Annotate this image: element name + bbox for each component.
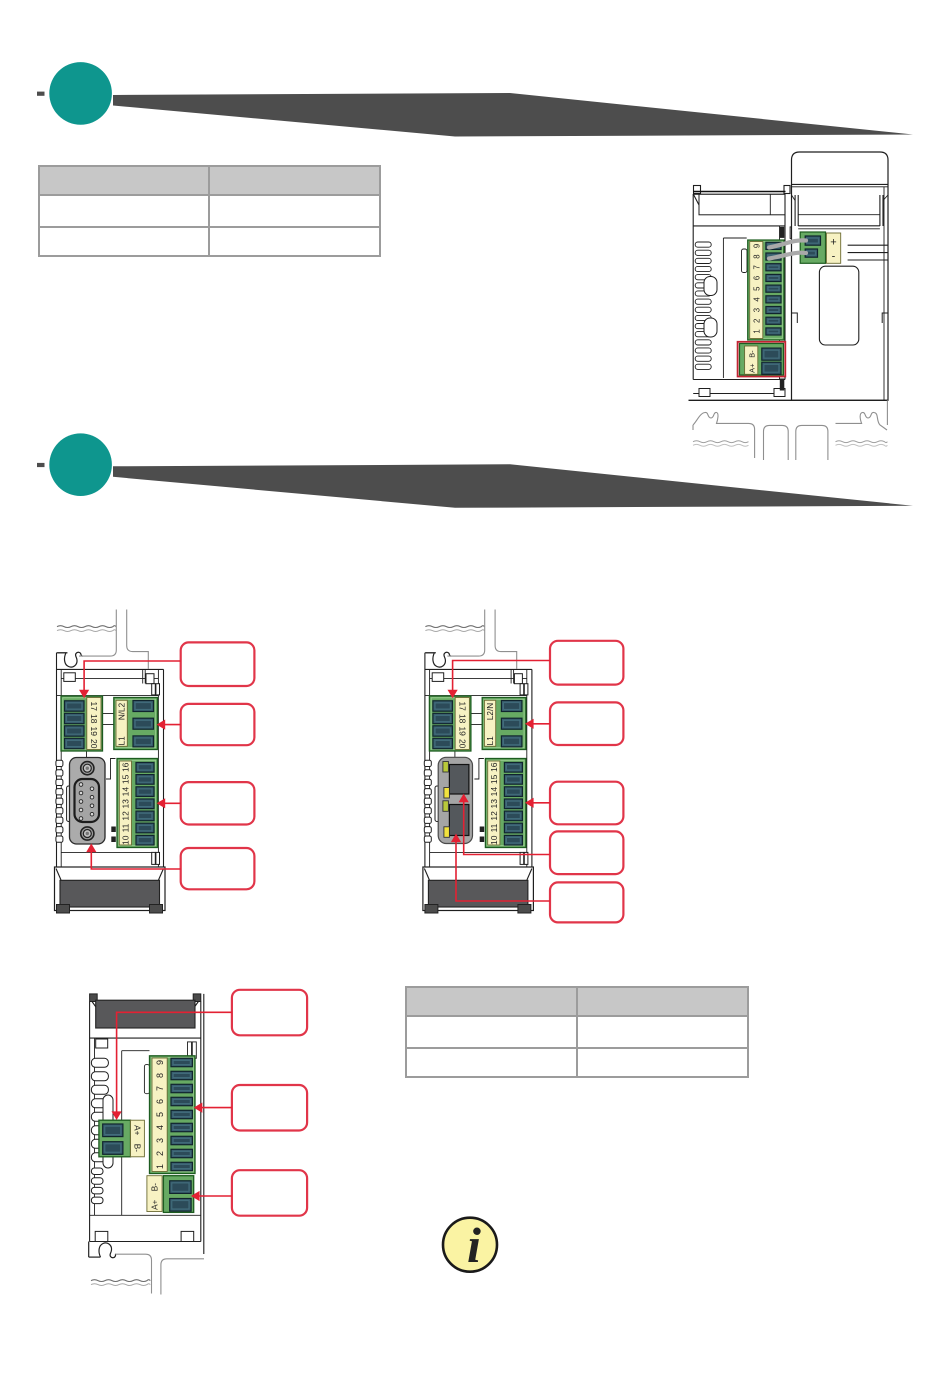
svg-text:13: 13 <box>120 799 130 809</box>
svg-text:12: 12 <box>120 811 130 821</box>
svg-text:11: 11 <box>489 823 499 832</box>
svg-text:19: 19 <box>457 726 467 736</box>
svg-text:B-: B- <box>151 1183 160 1191</box>
svg-text:L1: L1 <box>118 736 127 746</box>
svg-text:A+: A+ <box>132 1125 141 1135</box>
svg-text:16: 16 <box>120 762 130 772</box>
svg-text:7: 7 <box>155 1086 165 1091</box>
svg-text:A+: A+ <box>151 1199 160 1209</box>
svg-text:15: 15 <box>120 774 130 784</box>
svg-text:7: 7 <box>752 265 761 269</box>
svg-text:15: 15 <box>489 774 499 784</box>
svg-text:9: 9 <box>155 1060 165 1065</box>
svg-text:B-: B- <box>132 1144 141 1152</box>
svg-text:18: 18 <box>89 714 99 724</box>
svg-text:3: 3 <box>752 308 761 312</box>
svg-text:2: 2 <box>155 1151 165 1156</box>
svg-text:19: 19 <box>89 726 99 736</box>
svg-text:20: 20 <box>457 739 467 749</box>
svg-text:4: 4 <box>155 1125 165 1130</box>
svg-text:9: 9 <box>752 244 761 248</box>
svg-text:10: 10 <box>489 835 499 845</box>
svg-text:A+: A+ <box>747 364 756 373</box>
svg-text:10: 10 <box>120 835 130 845</box>
svg-text:14: 14 <box>489 787 499 797</box>
svg-text:1: 1 <box>155 1164 165 1169</box>
svg-text:3: 3 <box>155 1138 165 1143</box>
svg-text:+: + <box>830 237 836 249</box>
svg-text:12: 12 <box>489 811 499 821</box>
svg-text:5: 5 <box>752 286 761 291</box>
svg-text:i: i <box>467 1217 481 1273</box>
svg-text:-: - <box>832 251 836 263</box>
svg-text:L1: L1 <box>486 736 495 746</box>
svg-text:5: 5 <box>155 1112 165 1117</box>
svg-text:17: 17 <box>89 701 99 711</box>
svg-text:N/L2: N/L2 <box>118 702 127 720</box>
svg-text:L2/N: L2/N <box>486 703 495 720</box>
svg-text:8: 8 <box>752 254 761 258</box>
svg-text:13: 13 <box>489 799 499 809</box>
svg-text:4: 4 <box>752 297 761 302</box>
svg-text:2: 2 <box>752 319 761 323</box>
svg-text:11: 11 <box>120 823 130 832</box>
svg-text:8: 8 <box>155 1073 165 1078</box>
svg-text:17: 17 <box>457 701 467 711</box>
svg-text:20: 20 <box>89 739 99 749</box>
svg-text:6: 6 <box>155 1099 165 1104</box>
svg-text:14: 14 <box>120 787 130 797</box>
svg-text:6: 6 <box>752 276 761 280</box>
svg-text:1: 1 <box>752 329 761 333</box>
svg-text:18: 18 <box>457 714 467 724</box>
svg-text:B-: B- <box>747 350 756 358</box>
svg-text:16: 16 <box>489 762 499 772</box>
